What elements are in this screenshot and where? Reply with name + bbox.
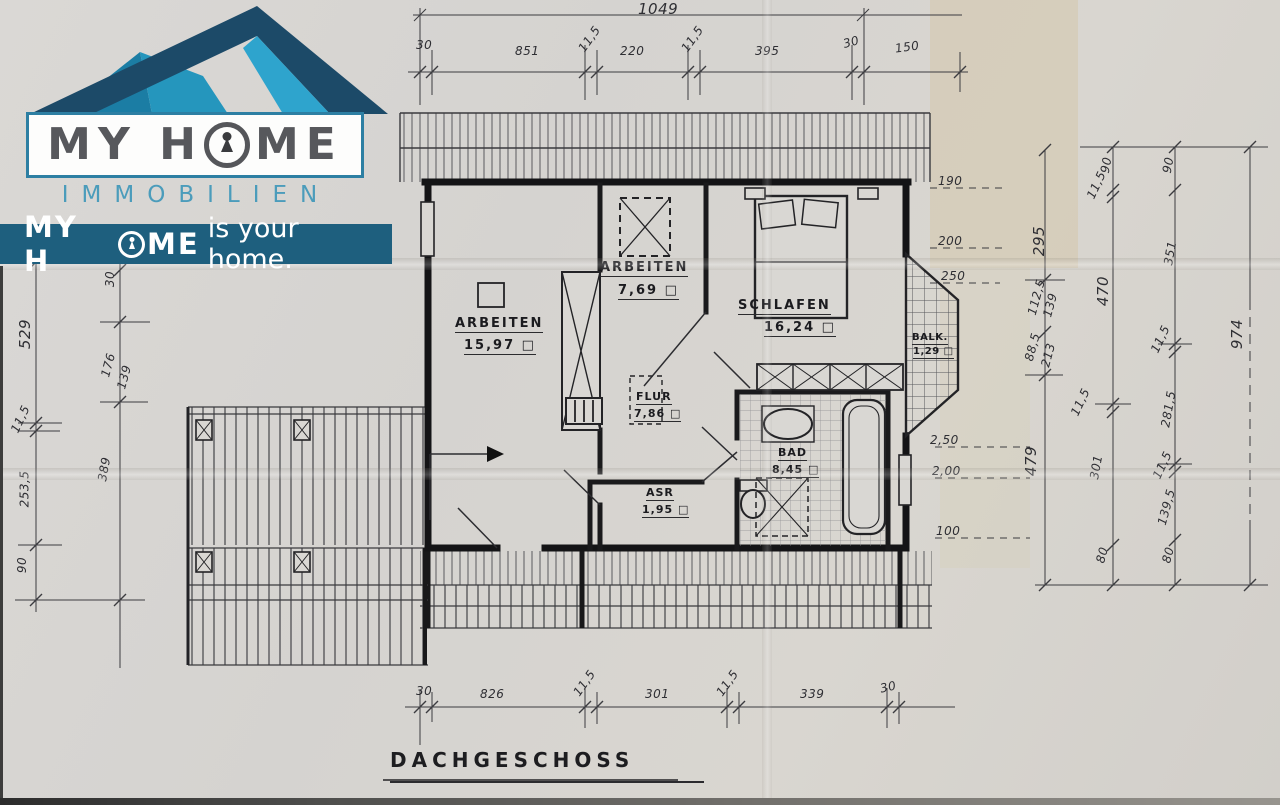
room-label-arbeiten-left: ARBEITEN (455, 316, 543, 333)
dim-right-c-0: 90 (1160, 156, 1177, 174)
dim-top-3: 220 (620, 44, 644, 58)
logo-title-pre: MY H (47, 123, 203, 167)
dim-right-a-0: 295 (1030, 226, 1048, 256)
tagline-rest: is your home. (208, 213, 392, 275)
room-label-schlafen: SCHLAFEN (738, 298, 831, 315)
plan-title: DACHGESCHOSS (390, 748, 704, 783)
height-upper-1: 200 (938, 234, 962, 248)
logo-title-post: ME (255, 123, 343, 167)
keyhole-icon-small (118, 231, 145, 258)
room-area-balkon: 1,29 □ (913, 346, 954, 359)
room-label-flur: FLUR (636, 390, 672, 405)
height-lower-2: 100 (936, 524, 960, 538)
paper-edge-left (0, 266, 3, 798)
room-label-asr: ASR (646, 486, 674, 501)
dim-bottom-0: 30 (416, 684, 432, 698)
dim-bottom-5: 339 (800, 687, 824, 701)
tagline-pre: MY H (24, 210, 116, 278)
logo-subtitle: IMMOBILIEN (0, 182, 392, 208)
room-area-arbeiten-left: 15,97 □ (464, 338, 536, 355)
dim-top-1: 851 (515, 44, 539, 58)
room-label-arbeiten-mid: ARBEITEN (600, 260, 688, 277)
dim-top-0: 30 (416, 38, 432, 52)
room-area-bad: 8,45 □ (772, 463, 819, 478)
room-area-asr: 1,95 □ (642, 503, 689, 518)
dim-top-total: 1049 (638, 0, 678, 18)
height-lower-0: 2,50 (930, 433, 959, 447)
myhome-immobilien-logo: MY HME IMMOBILIEN MY HMEis your home. (0, 0, 392, 268)
dim-top-5: 395 (755, 44, 779, 58)
height-upper-2: 250 (941, 269, 965, 283)
dim-bottom-1: 826 (480, 687, 504, 701)
dim-right-b-2: 470 (1094, 276, 1112, 306)
logo-tagline-banner: MY HMEis your home. (0, 224, 392, 264)
room-label-balkon: BALK. (912, 332, 948, 345)
dim-right-total: 974 (1228, 319, 1246, 349)
room-area-flur: 7,86 □ (634, 407, 681, 422)
logo-roof-icon (0, 0, 400, 120)
paper-edge-bottom (0, 798, 1280, 805)
height-lower-1: 2,00 (932, 464, 961, 478)
dim-left-outer-2: 253,5 (17, 471, 31, 508)
dim-left-outer-3: 90 (15, 557, 29, 573)
room-area-arbeiten-mid: 7,69 □ (618, 283, 679, 300)
dim-right-a-5: 479 (1022, 446, 1040, 476)
height-upper-0: 190 (938, 174, 962, 188)
scanned-floorplan-page: 1049 30 851 11,5 220 11,5 395 30 150 30 … (0, 0, 1280, 805)
room-label-bad: BAD (778, 446, 807, 461)
keyhole-icon (204, 122, 250, 168)
room-area-schlafen: 16,24 □ (764, 320, 836, 337)
dim-bottom-3: 301 (645, 687, 669, 701)
dim-left-outer-0: 529 (16, 319, 34, 349)
logo-title-box: MY HME (26, 112, 364, 178)
tagline-post: ME (147, 227, 200, 261)
